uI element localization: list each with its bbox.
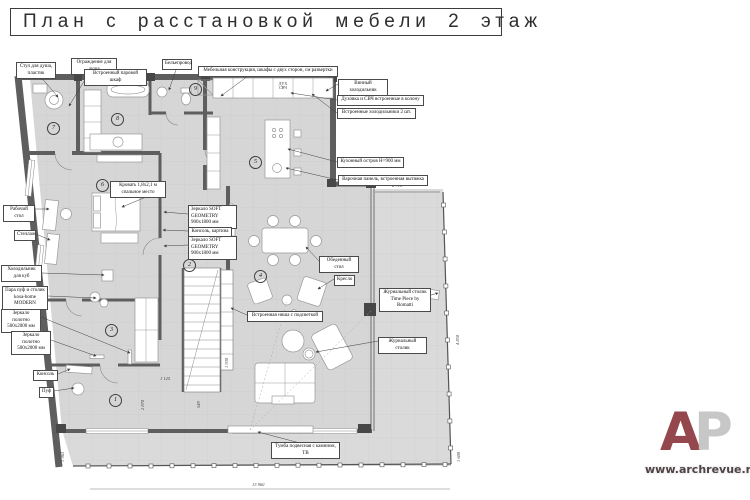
callout-label: Рабочий стол xyxy=(3,205,35,222)
callout-label: Холодильник для куб xyxy=(1,265,42,282)
callout-label: Духовка и СВЧ встроенные в колону xyxy=(337,95,424,106)
callout-label: Зеркало SOFT GEOMETRY 900х1800 мм xyxy=(188,205,237,229)
callout-label: Варочная панель, встроенная вытяжка xyxy=(338,175,428,186)
dimension-label: 1 600 xyxy=(456,452,461,462)
callout-label: Кровать 1,8х2,1 м спальное место xyxy=(110,181,166,198)
callout-label: Журнальный столик xyxy=(378,337,427,354)
floor-plan-sheet: План с расстановкой мебели 2 этаж xyxy=(0,0,750,500)
logo-letter-p: Р xyxy=(694,402,733,463)
callout-label: Зеркало полотно 500х2000 мм xyxy=(1,309,41,333)
dimension-label: 2 870 xyxy=(140,400,145,410)
dimension-label: 13 960 xyxy=(252,482,264,487)
callout-label: Пуф xyxy=(39,387,54,398)
callout-label: Зеркало полотно 500х2000 мм xyxy=(11,331,51,355)
room-number-badge: 7 xyxy=(47,122,60,135)
callout-label: Мебельная конструкция, шкафы с двух стор… xyxy=(198,66,338,77)
room-number-badge: 9 xyxy=(189,83,202,96)
callout-label: Журнальный столик Time Piece by Romatti xyxy=(379,288,431,312)
callout-label: Винный холодильник xyxy=(338,79,388,96)
callout-label: Кухонный остров Н=900 мм xyxy=(337,157,404,168)
room-number-badge: 3 xyxy=(105,324,118,337)
logo: АР xyxy=(660,406,733,459)
callout-label: Кресло xyxy=(334,275,355,286)
room-number-badge: 4 xyxy=(254,270,267,283)
callout-label: Встроенные холодильники 2 шт. xyxy=(337,108,416,119)
room-number-badge: 8 xyxy=(111,113,124,126)
callout-label: Встроенная ниша с подсветкой xyxy=(247,311,323,322)
callout-label: Консоль xyxy=(33,370,58,381)
callout-label: Пара пуф и столик kosa-home MODERN xyxy=(2,286,48,310)
room-number-badge: 5 xyxy=(249,156,262,169)
callout-label: Тумба подвесная с камином, ТВ xyxy=(271,442,340,459)
dimension-label: 4 850 xyxy=(455,335,460,345)
room-number-badge: 1 xyxy=(109,394,122,407)
callout-label: Зеркало SOFT GEOMETRY 900х1800 мм xyxy=(188,236,237,260)
dimension-label: 1 125 xyxy=(160,376,170,381)
dimension-label: 1 930 xyxy=(224,358,229,368)
kitchen-unit-label: ДУХСВЧ xyxy=(273,82,293,91)
callout-label: Стул для душа, пластик xyxy=(16,62,56,79)
dimension-label: 1 363 xyxy=(60,452,65,462)
callout-label: Встроенный паровой шкаф xyxy=(84,69,147,86)
room-number-badge: 2 xyxy=(183,259,196,272)
dimension-label: 549 xyxy=(196,401,201,408)
callout-label: Обеденный стол xyxy=(319,256,359,273)
room-number-badge: 6 xyxy=(96,179,109,192)
watermark-url[interactable]: www.archrevue.ru xyxy=(645,464,750,475)
callout-label: Стеллаж xyxy=(14,230,36,241)
callout-label: Бельепровод xyxy=(162,59,192,70)
